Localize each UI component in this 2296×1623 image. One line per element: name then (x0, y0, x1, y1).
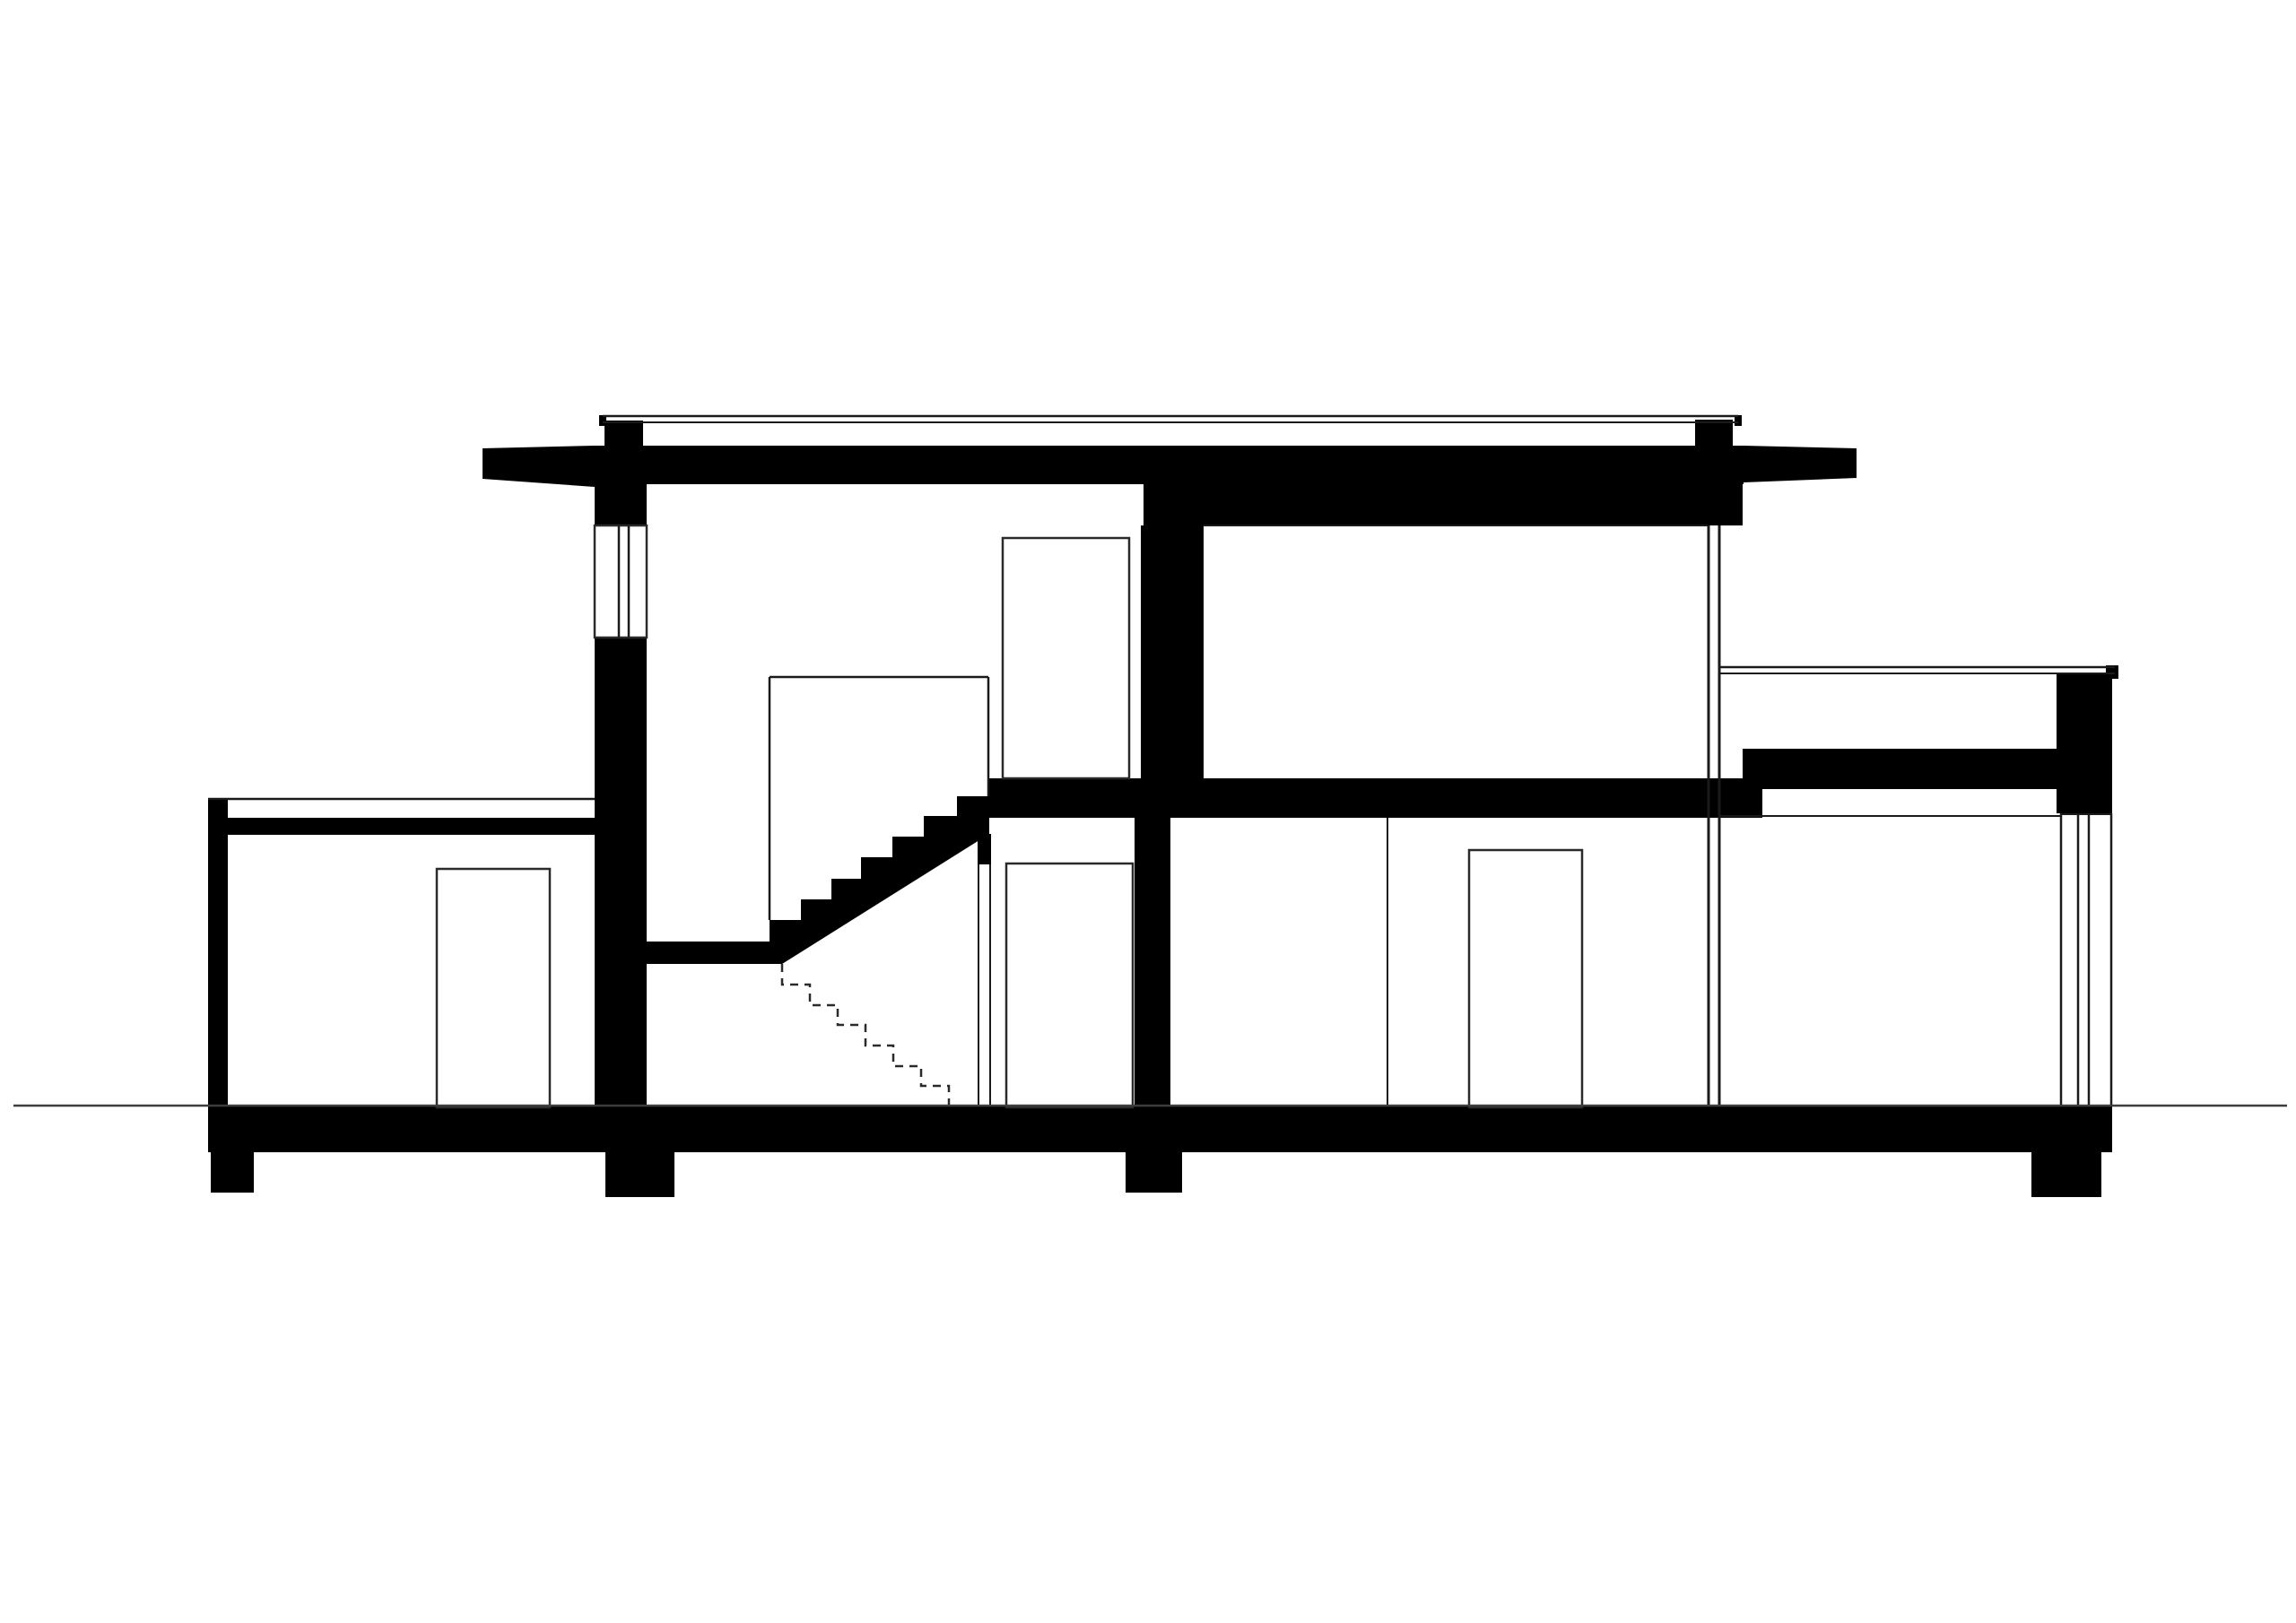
floor-slab (208, 1106, 2112, 1152)
ground-floor-right-door (1469, 850, 1582, 1107)
stair-lower-flight-dashed (782, 964, 949, 1106)
ground-floor-center-door (1006, 864, 1133, 1107)
footing-center (1126, 1152, 1182, 1193)
second-floor-slab (989, 778, 1762, 818)
garage-door (437, 869, 550, 1107)
drawing-sheet (0, 0, 2296, 1623)
center-wall-ground (1135, 818, 1170, 1106)
footing-right (2031, 1152, 2101, 1197)
extension-ceiling-beam (1743, 749, 2057, 789)
roof-parapet-right (1695, 420, 1733, 446)
roof-parapet-left (604, 421, 643, 446)
roof-beam-right (1144, 484, 1743, 525)
upper-floor-door (1003, 538, 1129, 778)
section-drawing (0, 0, 2296, 1623)
extension-right-wall (2057, 673, 2112, 813)
roof-overhang-left (483, 446, 595, 487)
center-wall-upper (1141, 525, 1204, 818)
roof-overhang-right (1744, 446, 1857, 482)
main-left-wall-lower (595, 638, 647, 1107)
garage-left-wall (208, 798, 228, 1107)
stair-upper-flight (647, 796, 989, 964)
garage-roof-slab (228, 818, 595, 835)
stair-hall-window (595, 525, 647, 638)
footing-main-left (605, 1152, 674, 1197)
main-left-wall-upper (595, 484, 647, 525)
main-roof-slab (595, 446, 1744, 484)
